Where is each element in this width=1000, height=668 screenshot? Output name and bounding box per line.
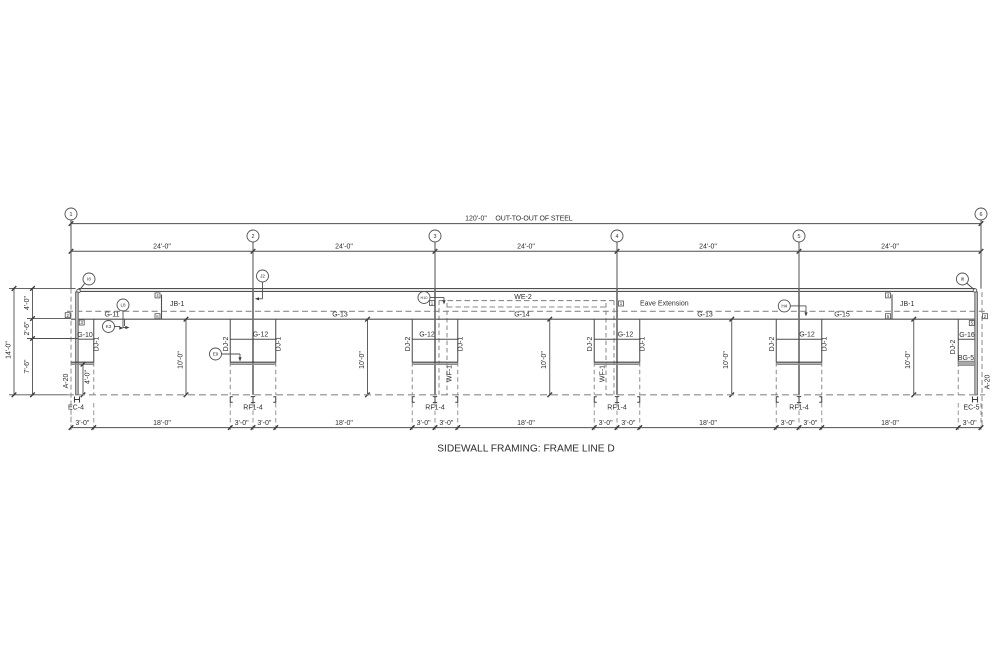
svg-text:G-15: G-15: [834, 311, 850, 318]
svg-text:SIDEWALL FRAMING: FRAME LINE D: SIDEWALL FRAMING: FRAME LINE D: [437, 444, 615, 455]
svg-text:DJ-1: DJ-1: [458, 337, 465, 352]
svg-text:3'-0": 3'-0": [599, 420, 613, 427]
svg-text:G-14: G-14: [514, 311, 530, 318]
svg-text:DJ-1: DJ-1: [640, 337, 647, 352]
svg-text:I8: I8: [87, 277, 91, 282]
svg-text:A-20: A-20: [63, 374, 70, 389]
svg-text:A-20: A-20: [985, 375, 992, 390]
svg-text:EC-5: EC-5: [964, 405, 980, 412]
svg-text:G-12: G-12: [419, 331, 435, 338]
svg-text:JB-1: JB-1: [900, 301, 915, 308]
svg-text:OUT-TO-OUT OF STEEL: OUT-TO-OUT OF STEEL: [495, 216, 572, 223]
svg-text:2'-6": 2'-6": [24, 321, 31, 335]
svg-text:3'-0": 3'-0": [417, 420, 431, 427]
svg-text:G-13: G-13: [332, 311, 348, 318]
svg-text:18'-0": 18'-0": [335, 420, 353, 427]
svg-text:EC-4: EC-4: [68, 405, 84, 412]
svg-text:WF-1: WF-1: [447, 365, 454, 382]
svg-text:JB-1: JB-1: [170, 301, 185, 308]
svg-text:18'-0": 18'-0": [881, 420, 899, 427]
svg-text:DJ-2: DJ-2: [405, 337, 412, 352]
svg-text:1: 1: [70, 212, 73, 218]
svg-text:24'-0": 24'-0": [335, 243, 353, 250]
svg-text:2: 2: [252, 234, 255, 240]
svg-text:7'-6": 7'-6": [24, 359, 31, 373]
svg-text:G-11: G-11: [104, 311, 119, 318]
svg-text:18'-0": 18'-0": [517, 420, 535, 427]
svg-text:DJ-1: DJ-1: [276, 337, 283, 352]
svg-text:G-12: G-12: [253, 331, 269, 338]
svg-text:Eave Extension: Eave Extension: [640, 301, 689, 308]
svg-text:G-12: G-12: [799, 331, 815, 338]
svg-text:WF-1: WF-1: [600, 365, 607, 382]
svg-text:4'-0": 4'-0": [24, 296, 31, 310]
svg-text:G-13: G-13: [697, 311, 713, 318]
svg-text:K3: K3: [106, 324, 112, 329]
svg-text:14'-0": 14'-0": [5, 341, 12, 359]
svg-text:G-16: G-16: [959, 332, 975, 339]
svg-text:5: 5: [798, 234, 801, 240]
svg-text:I8: I8: [961, 277, 965, 282]
svg-text:3'-0": 3'-0": [257, 420, 271, 427]
svg-text:24'-0": 24'-0": [517, 243, 535, 250]
svg-text:3'-0": 3'-0": [75, 420, 89, 427]
svg-text:3'-0": 3'-0": [621, 420, 635, 427]
svg-text:H10: H10: [421, 296, 428, 300]
svg-text:10'-0": 10'-0": [177, 351, 184, 369]
svg-text:3'-0": 3'-0": [963, 420, 977, 427]
svg-text:3'-0": 3'-0": [803, 420, 817, 427]
svg-text:DJ-1: DJ-1: [822, 337, 829, 352]
svg-text:DJ-2: DJ-2: [950, 340, 957, 355]
svg-text:E9: E9: [213, 352, 219, 357]
svg-text:3'-0": 3'-0": [439, 420, 453, 427]
svg-text:24'-0": 24'-0": [699, 243, 717, 250]
svg-text:4'-0": 4'-0": [85, 370, 92, 384]
svg-text:18'-0": 18'-0": [153, 420, 171, 427]
svg-text:24'-0": 24'-0": [881, 243, 899, 250]
svg-text:4: 4: [616, 234, 619, 240]
svg-text:DJ-1: DJ-1: [94, 337, 101, 352]
svg-text:G-12: G-12: [618, 331, 634, 338]
svg-text:DJ-2: DJ-2: [587, 337, 594, 352]
svg-text:10'-0": 10'-0": [359, 351, 366, 369]
svg-text:6: 6: [980, 212, 983, 218]
svg-text:18'-0": 18'-0": [699, 420, 717, 427]
svg-text:10'-0": 10'-0": [905, 351, 912, 369]
svg-text:BG-5: BG-5: [958, 355, 974, 362]
svg-text:3'-0": 3'-0": [235, 420, 249, 427]
svg-text:24'-0": 24'-0": [153, 243, 171, 250]
svg-text:10'-0": 10'-0": [723, 351, 730, 369]
svg-text:J2: J2: [260, 274, 265, 279]
svg-text:DJ-2: DJ-2: [769, 337, 776, 352]
svg-text:DJ-2: DJ-2: [223, 337, 230, 352]
svg-text:WE-2: WE-2: [514, 294, 532, 301]
svg-text:G-10: G-10: [77, 332, 93, 339]
svg-text:3: 3: [434, 234, 437, 240]
svg-text:H4: H4: [781, 304, 787, 309]
svg-text:120'-0": 120'-0": [465, 216, 487, 223]
svg-text:3'-0": 3'-0": [781, 420, 795, 427]
svg-text:L8: L8: [120, 303, 126, 308]
svg-text:10'-0": 10'-0": [541, 351, 548, 369]
